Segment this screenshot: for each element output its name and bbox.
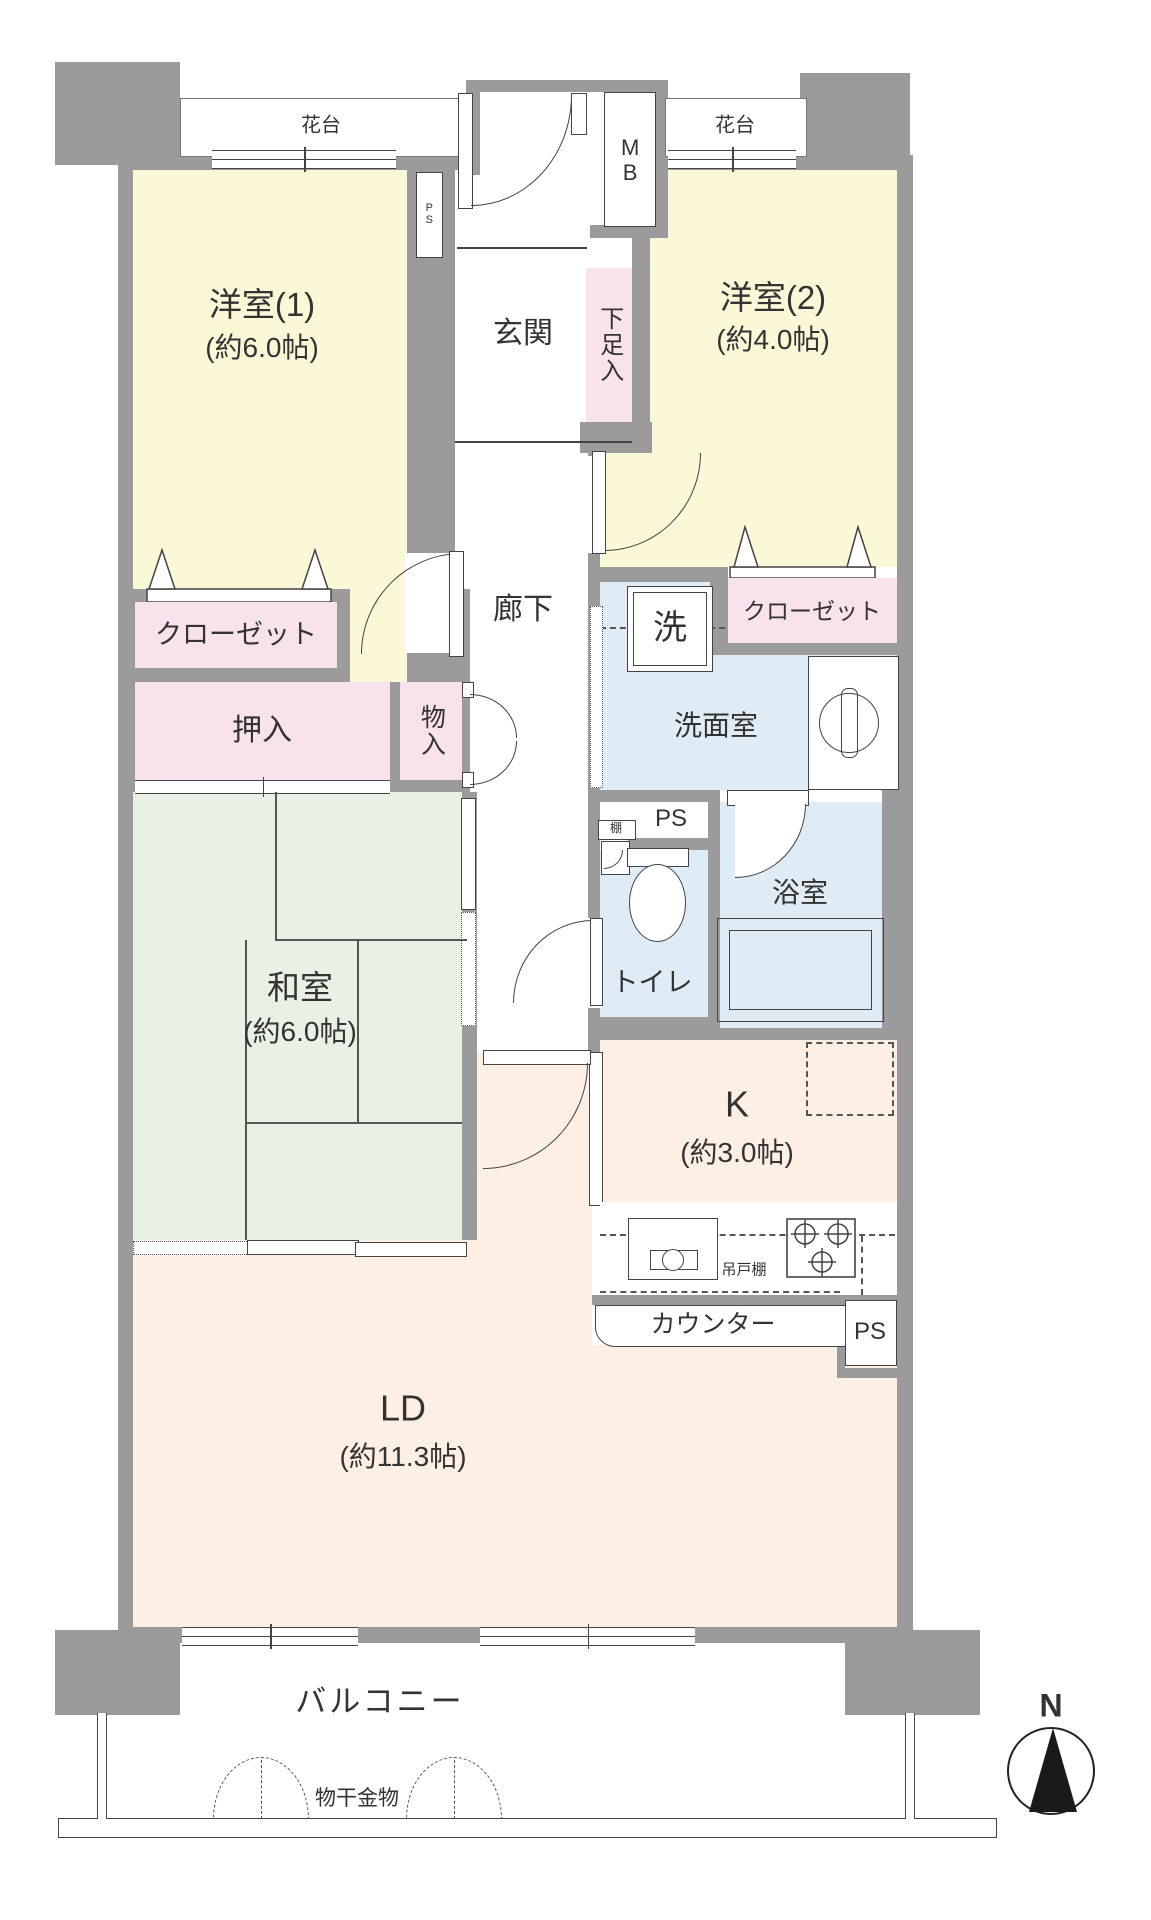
- washitsu-ld-sliding-panel-2: [355, 1242, 467, 1257]
- refrigerator-space: [806, 1042, 894, 1116]
- room-label-yokushitsu: 浴室: [772, 877, 828, 909]
- wall-closet2-bottom: [710, 643, 897, 655]
- shelf-label: 棚: [610, 822, 622, 836]
- tatami-line: [245, 940, 247, 1240]
- counter-dash-right: [861, 1236, 863, 1295]
- monoiri-door-arc-bottom: [470, 741, 517, 785]
- senmenshitsu-sliding-door: [590, 606, 603, 788]
- closet1-folding-door: [143, 548, 335, 604]
- toire-door-leaf: [590, 918, 603, 1006]
- room-size-living: (約11.3帖): [339, 1441, 466, 1473]
- room-living-floor-right: [592, 1345, 897, 1630]
- yoshitsu1-door-leaf: [449, 551, 464, 657]
- balcony-label: バルコニー: [295, 1684, 464, 1720]
- tatami-line: [275, 939, 467, 941]
- room-label-toire: トイレ: [612, 967, 693, 998]
- wall-senmenshitsu-bottom: [598, 790, 708, 802]
- entrance-door-arc: [471, 95, 572, 206]
- pillar-bottom-left: [55, 1630, 180, 1715]
- room-size-yoshitsu1: (約6.0帖): [205, 332, 319, 364]
- hanging-cupboard-label: 吊戸棚: [719, 1261, 768, 1278]
- entrance-door-child-leaf: [571, 93, 587, 135]
- closet2-folding-door: [728, 523, 878, 580]
- window-yoshitsu2: [668, 150, 796, 169]
- hall-step-line: [455, 441, 632, 443]
- room-size-washitsu: (約6.0帖): [243, 1016, 357, 1048]
- wall-bath-right: [882, 790, 897, 1040]
- closet1-label: クローゼット: [155, 619, 317, 650]
- window-yoshitsu1: [212, 150, 396, 169]
- window-ld-left: [182, 1627, 358, 1646]
- meter-box-label: MB: [617, 135, 642, 185]
- wall-entrance-top: [466, 80, 668, 92]
- monoiri-door-arc-top: [470, 694, 517, 738]
- washitsu-ld-fixed-panel: [133, 1241, 249, 1255]
- wall-genkan-yoshitsu2: [632, 238, 650, 453]
- bathtub: [717, 918, 884, 1022]
- pillar-top-left: [55, 62, 180, 165]
- washbasin-icon: [819, 693, 879, 753]
- wall-bath-bottom: [708, 1028, 897, 1040]
- wall-right: [897, 155, 913, 1643]
- compass-icon: [1005, 1724, 1097, 1818]
- pipe-space-mid-label: PS: [655, 805, 687, 833]
- laundry-hardware-label: 物干金物: [315, 1787, 399, 1811]
- laundry-pole-arc: [213, 1757, 309, 1819]
- kitchen-partition: [589, 1052, 603, 1206]
- entrance-step-line: [457, 247, 587, 249]
- room-size-yoshitsu2: (約4.0帖): [716, 324, 830, 356]
- wall-left: [118, 155, 133, 1643]
- room-yoshitsu1-floor: [133, 170, 407, 589]
- pillar-bottom-right: [845, 1630, 980, 1715]
- wall-ps-kitchen-bottom: [837, 1368, 897, 1378]
- room-label-living: LD: [380, 1387, 426, 1428]
- floorplan: 洗: [0, 0, 1151, 1920]
- wall-shitasokuiri-bottom: [580, 422, 652, 453]
- stove-icon: [786, 1218, 856, 1278]
- yoshitsu2-door-leaf: [592, 451, 606, 554]
- room-living-floor-main: [133, 1240, 592, 1630]
- window-ld-right: [480, 1627, 695, 1646]
- room-size-kitchen: (約3.0帖): [680, 1137, 794, 1169]
- pillar-top-right: [800, 73, 910, 170]
- room-label-kitchen: K: [725, 1083, 749, 1124]
- room-label-senmenshitsu: 洗面室: [674, 710, 758, 742]
- wall-senmenshitsu-top: [598, 567, 728, 582]
- closet2-label: クローゼット: [743, 598, 881, 624]
- toilet-bowl-icon: [629, 864, 686, 942]
- washing-machine-label: 洗: [653, 609, 687, 648]
- monoiri-label: 物入: [417, 704, 446, 758]
- compass-north-label: N: [1039, 1688, 1062, 1725]
- washitsu-corridor-pocket: [461, 912, 476, 1026]
- room-label-genkan: 玄関: [493, 317, 553, 352]
- balcony-rail-left: [97, 1713, 107, 1819]
- washing-machine: 洗: [627, 586, 713, 672]
- tatami-line: [245, 1122, 462, 1124]
- room-label-yoshitsu1: 洋室(1): [209, 286, 315, 324]
- laundry-pole-arc: [406, 1757, 502, 1819]
- room-label-yoshitsu2: 洋室(2): [720, 279, 826, 317]
- room-label-washitsu: 和室: [267, 969, 333, 1007]
- room-label-rouka: 廊下: [493, 593, 553, 628]
- sink-drain-icon: [662, 1249, 684, 1271]
- tatami-line: [275, 792, 277, 940]
- toire-door-arc: [513, 920, 593, 1003]
- wall-toire-bottom: [588, 1017, 720, 1040]
- toilet-corner-shelf: [601, 841, 630, 875]
- counter-label: カウンター: [650, 1311, 775, 1340]
- pipe-space-top-label: PS: [423, 202, 436, 226]
- pipe-space-kitchen-label: PS: [854, 1318, 886, 1346]
- counter-dash-front: [600, 1291, 840, 1293]
- oshiire-label: 押入: [232, 714, 292, 749]
- balcony-edge: [58, 1818, 997, 1838]
- washitsu-corridor-sliding-door: [461, 798, 476, 910]
- shoe-storage-label: 下足入: [595, 306, 623, 384]
- washitsu-ld-sliding-panel-1: [247, 1240, 359, 1255]
- flower-stand-left-label: 花台: [301, 115, 341, 138]
- tatami-line: [357, 940, 359, 1123]
- flower-stand-right-label: 花台: [715, 115, 755, 138]
- balcony-rail-right: [905, 1713, 915, 1819]
- oshiire-sliding-door: [135, 780, 390, 794]
